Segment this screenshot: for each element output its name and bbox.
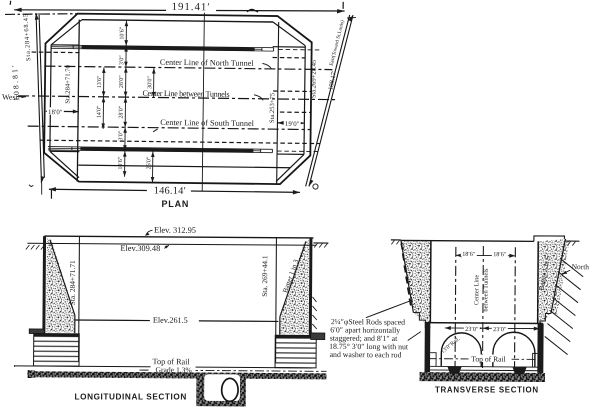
svg-text:Elev. 312.95: Elev. 312.95: [154, 226, 196, 235]
svg-text:23′0″: 23′0″: [465, 326, 479, 333]
svg-text:LONGITUDINAL SECTION: LONGITUDINAL SECTION: [75, 393, 187, 402]
svg-text:13′6″: 13′6″: [97, 75, 103, 88]
svg-text:North: North: [572, 262, 590, 271]
svg-text:18′0″: 18′0″: [48, 109, 63, 116]
svg-text:146.14′: 146.14′: [154, 186, 186, 197]
svg-text:10′6″: 10′6″: [118, 156, 124, 169]
svg-text:3′0″: 3′0″: [119, 55, 125, 65]
svg-text:Center Line between Tunnels: Center Line between Tunnels: [142, 89, 229, 99]
svg-text:Sta. 269+44.1: Sta. 269+44.1: [260, 255, 269, 297]
svg-text:28′0″: 28′0″: [119, 75, 125, 88]
svg-text:18′6″: 18′6″: [462, 251, 476, 258]
svg-text:TRANSVERSE SECTION: TRANSVERSE SECTION: [435, 386, 539, 395]
svg-text:30′0″: 30′0″: [147, 76, 153, 89]
svg-text:10′6″: 10′6″: [120, 26, 126, 39]
svg-text:Sta.284+71.70: Sta.284+71.70: [64, 65, 71, 104]
svg-text:Center Line of South Tunnel: Center Line of South Tunnel: [160, 118, 255, 128]
svg-text:26′0″: 26′0″: [146, 156, 152, 169]
svg-text:Sta. 284+71.71: Sta. 284+71.71: [68, 260, 77, 305]
svg-text:East(Toward St.Louis): East(Toward St.Louis): [328, 19, 346, 66]
svg-text:Top of Rail: Top of Rail: [471, 354, 506, 363]
svg-text:28′0″: 28′0″: [119, 105, 125, 118]
svg-text:191.41′: 191.41′: [172, 1, 211, 13]
svg-text:PLAN: PLAN: [162, 199, 190, 209]
svg-text:3′0″: 3′0″: [118, 130, 124, 140]
svg-text:and washer to each rod: and washer to each rod: [330, 350, 402, 360]
svg-text:Sta.269+28.45: Sta.269+28.45: [310, 59, 317, 98]
svg-text:23′0″: 23′0″: [493, 326, 507, 333]
svg-text:14′0″: 14′0″: [97, 105, 103, 118]
svg-text:Center Line of North Tunnel: Center Line of North Tunnel: [160, 58, 255, 68]
svg-text:Sta.284+68.45: Sta.284+68.45: [22, 13, 32, 61]
svg-text:Sta.253+75: Sta.253+75: [269, 92, 276, 123]
svg-text:19′0″: 19′0″: [285, 121, 300, 128]
svg-text:Center Line: Center Line: [473, 275, 480, 306]
svg-text:Elev.261.5: Elev.261.5: [153, 316, 188, 325]
svg-text:Elev.309.48: Elev.309.48: [120, 244, 160, 253]
svg-text:West: West: [2, 92, 19, 101]
svg-text:18′6″: 18′6″: [493, 251, 507, 258]
svg-text:between Tunnels: between Tunnels: [482, 268, 489, 312]
